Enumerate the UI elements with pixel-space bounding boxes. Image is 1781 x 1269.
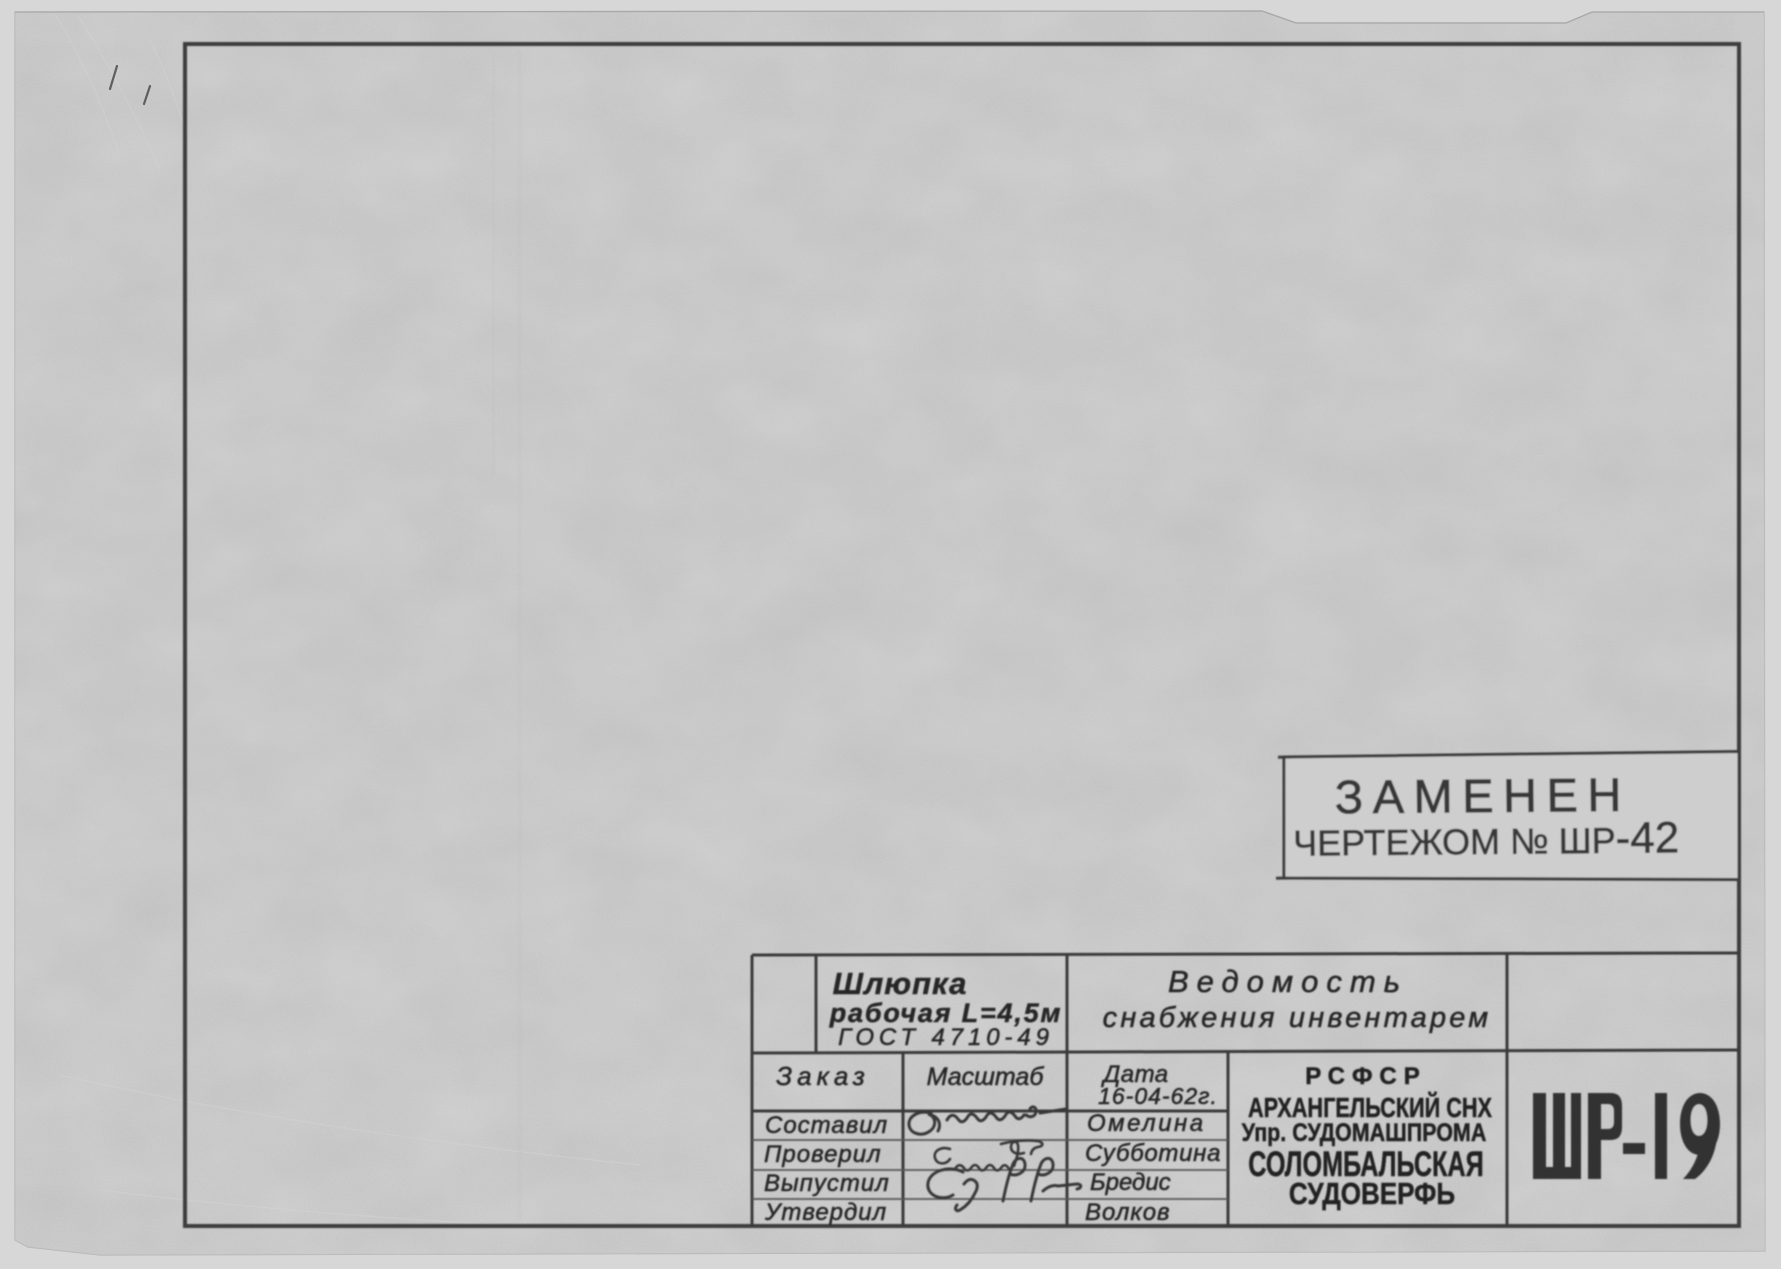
- svg-text:Субботина: Субботина: [1085, 1140, 1221, 1167]
- svg-text:Ведомость: Ведомость: [1168, 964, 1408, 999]
- svg-text:Проверил: Проверил: [764, 1141, 882, 1168]
- svg-text:Масштаб: Масштаб: [927, 1063, 1045, 1091]
- svg-text:Составил: Составил: [765, 1112, 888, 1139]
- svg-text:Волков: Волков: [1085, 1199, 1171, 1226]
- svg-text:СУДОВЕРФЬ: СУДОВЕРФЬ: [1289, 1177, 1455, 1212]
- svg-text:ГОСТ 4710-49: ГОСТ 4710-49: [838, 1024, 1054, 1051]
- svg-text:Шлюпка: Шлюпка: [833, 966, 968, 1001]
- svg-text:Упр. СУДОМАШПРОМА: Упр. СУДОМАШПРОМА: [1242, 1118, 1487, 1146]
- svg-text:Утвердил: Утвердил: [764, 1199, 887, 1226]
- svg-text:Выпустил: Выпустил: [764, 1170, 890, 1197]
- svg-text:16-04-62г.: 16-04-62г.: [1098, 1083, 1218, 1109]
- svg-text:снабжения инвентарем: снабжения инвентарем: [1103, 1002, 1492, 1034]
- svg-text:Омелина: Омелина: [1087, 1110, 1206, 1137]
- svg-text:Заказ: Заказ: [776, 1061, 870, 1091]
- svg-text:ЗАМЕНЕН: ЗАМЕНЕН: [1335, 768, 1631, 824]
- svg-text:Бредис: Бредис: [1090, 1169, 1171, 1196]
- svg-text:РСФСР: РСФСР: [1305, 1063, 1427, 1090]
